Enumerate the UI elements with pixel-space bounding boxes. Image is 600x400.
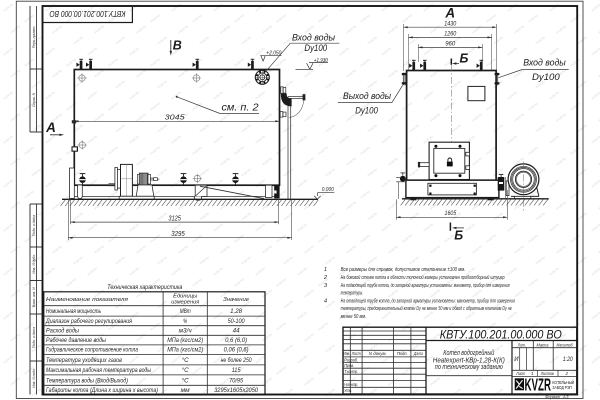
svg-text:1430: 1430 <box>444 20 456 27</box>
svg-text:70/95: 70/95 <box>229 378 244 384</box>
svg-text:КВТУ.100.201.00.000 ВО: КВТУ.100.201.00.000 ВО <box>49 9 126 18</box>
svg-text:Вход воды: Вход воды <box>523 58 566 68</box>
svg-text:°С: °С <box>182 358 190 364</box>
svg-text:Формат: Формат <box>545 394 560 399</box>
svg-text:1: 1 <box>324 267 327 273</box>
svg-text:по техническому заданию: по техническому заданию <box>435 363 504 371</box>
svg-text:0.000: 0.000 <box>322 187 334 193</box>
svg-text:Изм.: Изм. <box>343 351 350 356</box>
svg-text:Разраб.: Разраб. <box>344 357 358 362</box>
svg-text:Подп. и дата: Подп. и дата <box>32 327 36 348</box>
svg-text:0,06 (0,6): 0,06 (0,6) <box>224 348 249 354</box>
svg-text:44: 44 <box>233 328 241 334</box>
svg-text:Б: Б <box>460 52 469 66</box>
svg-text:Значение: Значение <box>223 297 250 303</box>
svg-text:Инв. N подл.: Инв. N подл. <box>32 368 36 388</box>
svg-text:м3/ч: м3/ч <box>179 328 192 334</box>
svg-text:Наименование показателя: Наименование показателя <box>46 297 128 303</box>
svg-text:Справ. N: Справ. N <box>32 92 36 107</box>
svg-text:°С: °С <box>182 378 190 384</box>
svg-text:Температура уходящих газов: Температура уходящих газов <box>46 358 122 364</box>
svg-text:4: 4 <box>324 299 327 305</box>
svg-text:1,28: 1,28 <box>230 309 243 315</box>
svg-text:%: % <box>183 319 187 325</box>
svg-text:На боковой стенке котла в обла: На боковой стенке котла в области топочн… <box>341 274 505 281</box>
svg-text:+1.930: +1.930 <box>314 58 328 64</box>
svg-text:И: И <box>514 357 519 363</box>
svg-text:Дата: Дата <box>413 351 423 356</box>
svg-text:А: А <box>444 5 455 20</box>
svg-text:3045: 3045 <box>165 112 186 121</box>
svg-text:960: 960 <box>445 41 456 48</box>
svg-text:Температура воды (Вход/Выход): Температура воды (Вход/Выход) <box>46 378 128 384</box>
svg-text:Диапазон рабочего регулировани: Диапазон рабочего регулирования <box>45 319 133 325</box>
svg-text:N докум.: N докум. <box>369 351 387 356</box>
svg-text:3125: 3125 <box>168 215 181 222</box>
svg-text:измерения: измерения <box>171 300 199 306</box>
svg-text:Номинальная мощность: Номинальная мощность <box>46 309 101 315</box>
svg-text:Взам. инв. N: Взам. инв. N <box>32 287 36 307</box>
svg-text:Выход воды: Выход воды <box>343 91 391 101</box>
svg-text:см. п. 2: см. п. 2 <box>222 103 259 114</box>
svg-text:Масса: Масса <box>537 343 550 348</box>
svg-text:Н.контр.: Н.контр. <box>344 382 358 387</box>
svg-text:2: 2 <box>564 371 568 376</box>
svg-text:115: 115 <box>232 368 242 374</box>
svg-text:Dу100: Dу100 <box>532 72 560 82</box>
svg-text:МПа (кгс/см2): МПа (кгс/см2) <box>167 338 203 344</box>
svg-text:менее 50 мм.: менее 50 мм. <box>341 314 367 320</box>
svg-text:температуры.: температуры. <box>341 290 364 296</box>
svg-text:Dу100: Dу100 <box>355 105 378 115</box>
svg-text:1605: 1605 <box>445 210 457 217</box>
svg-text:KVZR: KVZR <box>525 374 552 394</box>
svg-text:0,6 (6,0): 0,6 (6,0) <box>225 338 247 344</box>
svg-text:Гидравлическое сопротивление к: Гидравлическое сопротивление котла <box>46 348 139 354</box>
svg-text:А: А <box>45 120 56 135</box>
svg-text:МПа (кгс/см2): МПа (кгс/см2) <box>167 348 203 354</box>
svg-text:КВТУ.100.201.00.000 ВО: КВТУ.100.201.00.000 ВО <box>440 328 562 342</box>
svg-text:В: В <box>173 39 182 53</box>
svg-text:Максимальная рабочая температу: Максимальная рабочая температура воды <box>46 368 151 374</box>
svg-text:Лист: Лист <box>351 351 361 356</box>
svg-text:Перв. примен.: Перв. примен. <box>32 26 36 49</box>
svg-text:Котел водогрейный: Котел водогрейный <box>443 349 494 357</box>
svg-text:Т.контр.: Т.контр. <box>344 369 358 374</box>
svg-text:Подп. и дата: Подп. и дата <box>32 215 36 236</box>
svg-text:ЗАВОД РЭП: ЗАВОД РЭП <box>552 385 572 390</box>
svg-text:Пров.: Пров. <box>344 363 354 368</box>
svg-text:Подп.: Подп. <box>397 351 408 356</box>
svg-text:На подводящей трубе котла, д: На подводящей трубе котла, до запорной а… <box>341 282 510 289</box>
svg-text:Инв. N дубл.: Инв. N дубл. <box>32 254 36 274</box>
svg-text:мм: мм <box>181 388 190 394</box>
svg-text:МВт: МВт <box>180 309 191 315</box>
svg-text:Утв.: Утв. <box>344 388 352 393</box>
svg-text:Масштаб: Масштаб <box>557 343 573 348</box>
svg-text:Dу100: Dу100 <box>304 43 327 53</box>
svg-text:На отводящей трубе котла ,до з: На отводящей трубе котла ,до запорной ар… <box>341 298 515 305</box>
svg-text:Техническая характеристика: Техническая характеристика <box>107 284 182 291</box>
svg-text:Расход воды: Расход воды <box>46 328 80 334</box>
svg-text:температуры, предохранительный: температуры, предохранительный клапан Dу… <box>341 305 513 312</box>
svg-text:50-100: 50-100 <box>228 319 246 325</box>
svg-text:°С: °С <box>182 368 190 374</box>
svg-text:Вход воды: Вход воды <box>292 33 335 43</box>
svg-text:не более 250: не более 250 <box>221 358 253 364</box>
svg-text:3295: 3295 <box>171 231 185 238</box>
svg-text:Б: Б <box>454 229 463 243</box>
svg-text:1260: 1260 <box>444 31 456 38</box>
svg-text:Рабочее давление воды: Рабочее давление воды <box>46 338 107 344</box>
svg-text:1:20: 1:20 <box>563 357 574 363</box>
svg-text:Все размеры для справок, допус: Все размеры для справок, допустимое откл… <box>341 267 466 273</box>
svg-text:Лит.: Лит. <box>517 343 526 348</box>
svg-text:3295х1605х2050: 3295х1605х2050 <box>214 388 259 394</box>
svg-text:Габариты котла (Длина х ширина: Габариты котла (Длина х ширина х высота) <box>46 388 158 394</box>
svg-text:А3: А3 <box>561 394 569 399</box>
